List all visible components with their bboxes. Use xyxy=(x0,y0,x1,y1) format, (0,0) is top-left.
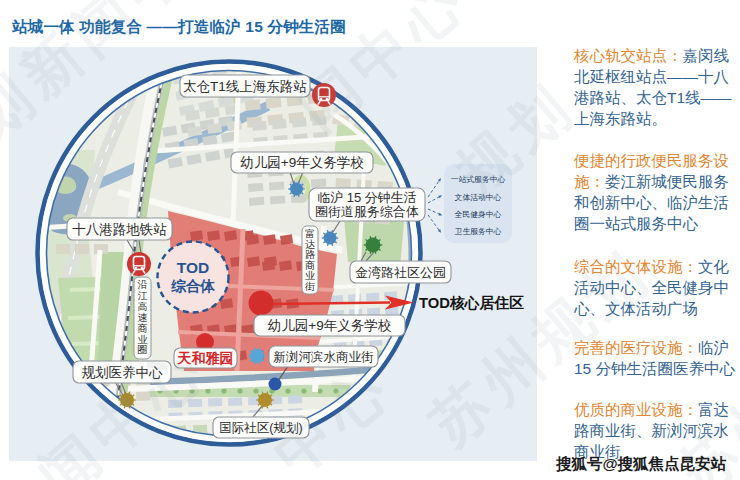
svg-text:TOD: TOD xyxy=(177,259,209,276)
svg-text:卫生服务中心: 卫生服务中心 xyxy=(455,227,502,236)
svg-text:沿江高速商业圈: 沿江高速商业圈 xyxy=(138,279,148,355)
svg-text:临沪 15 分钟生活: 临沪 15 分钟生活 xyxy=(317,190,417,205)
svg-text:幼儿园+9年义务学校: 幼儿园+9年义务学校 xyxy=(240,155,364,170)
svg-text:全民健身中心: 全民健身中心 xyxy=(455,210,502,219)
svg-text:综合体: 综合体 xyxy=(170,278,215,294)
svg-text:十八港路地铁站: 十八港路地铁站 xyxy=(72,222,167,237)
svg-text:幼儿园+9年义务学校: 幼儿园+9年义务学校 xyxy=(268,318,392,333)
svg-text:富达路商业街: 富达路商业街 xyxy=(305,228,315,292)
svg-text:金湾路社区公园: 金湾路社区公园 xyxy=(355,265,446,280)
svg-text:圈街道服务综合体: 圈街道服务综合体 xyxy=(315,204,419,219)
svg-text:TOD核心居住区: TOD核心居住区 xyxy=(419,295,524,311)
